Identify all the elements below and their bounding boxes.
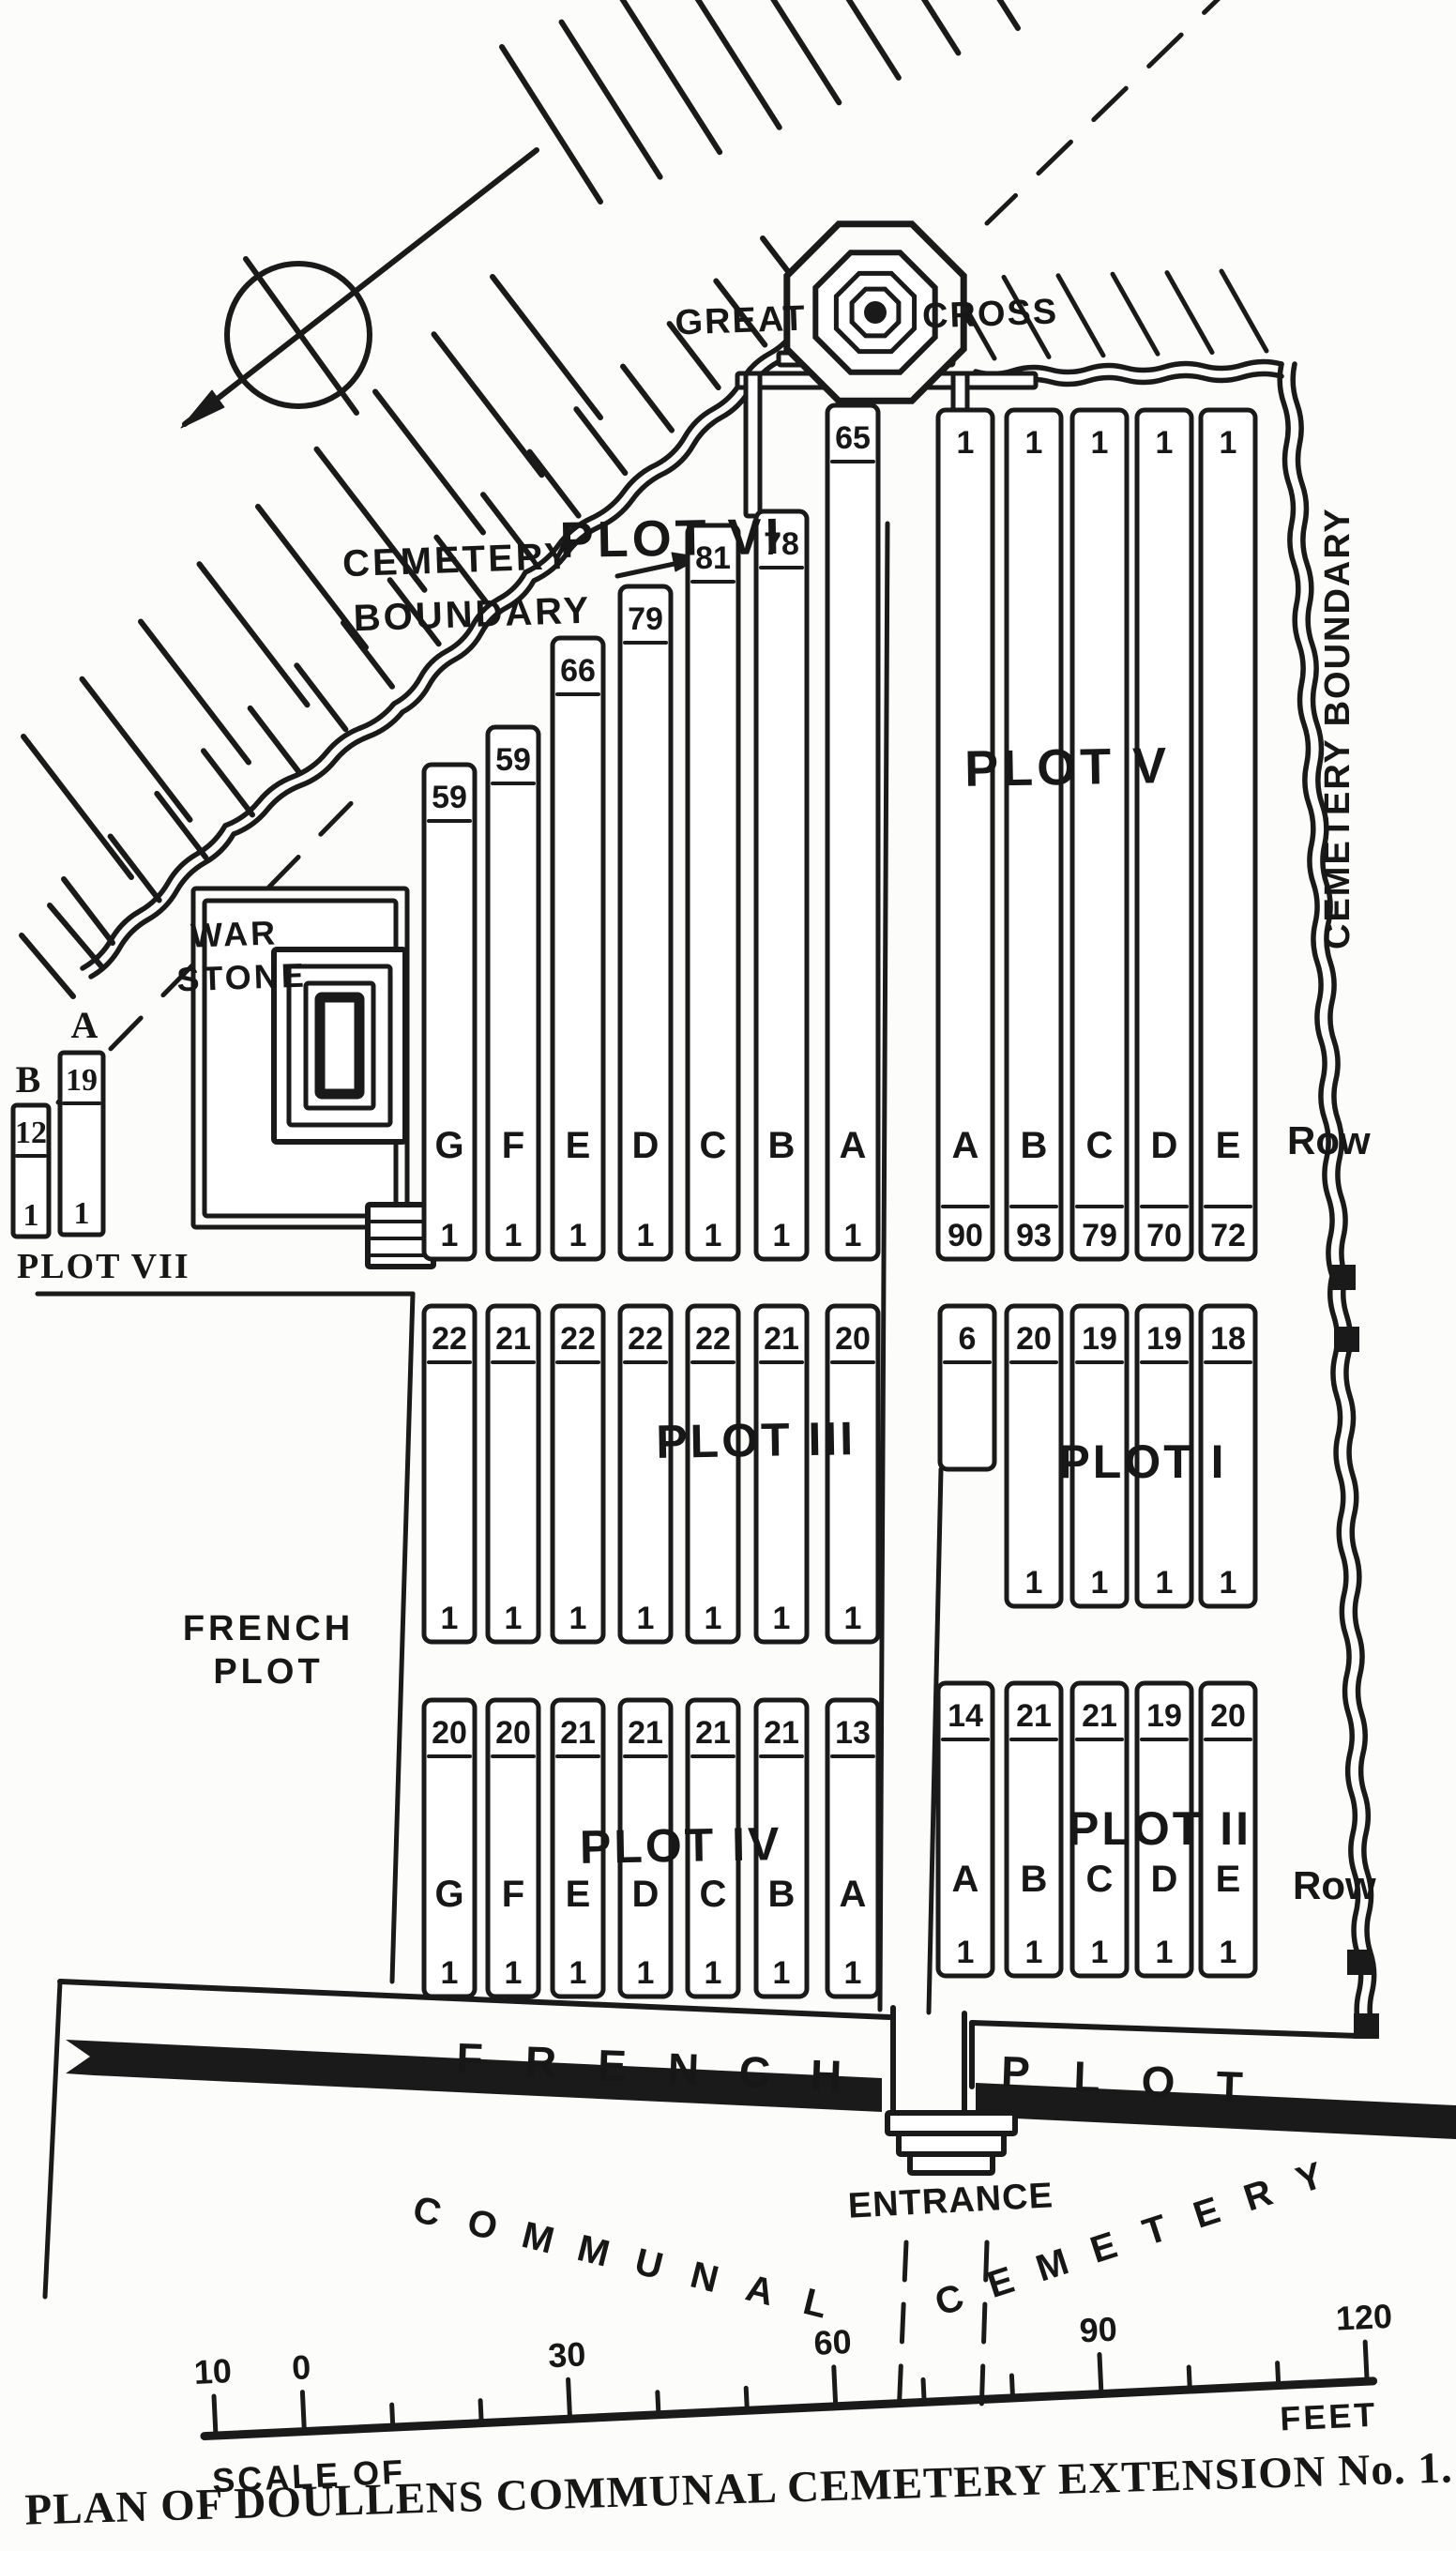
- row-letter: D: [632, 1874, 660, 1915]
- entrance-step: [899, 2133, 1004, 2154]
- row-bottom-number: 1: [844, 1601, 862, 1636]
- scale-tick-label: 10: [193, 2351, 233, 2392]
- cemetery-plan-page: FRENCHPLOTCOMMUNALCEMETERY 59G159F166E17…: [0, 0, 1456, 2551]
- strip-letter: E: [597, 2041, 627, 2090]
- strip-letter: E: [1085, 2225, 1122, 2271]
- plot-v-name: PLOT V: [964, 737, 1171, 797]
- scale-right-label: FEET: [1279, 2395, 1378, 2438]
- french-plot-label-line1: FRENCH: [183, 1609, 354, 1648]
- hatch-stroke: [23, 736, 131, 877]
- plan-title: PLAN OF DOULLENS COMMUNAL CEMETERY EXTEN…: [24, 2443, 1453, 2534]
- entrance-step: [910, 2154, 993, 2173]
- entrance-label: ENTRANCE: [847, 2176, 1054, 2225]
- row-bottom-number: 1: [1091, 1565, 1109, 1601]
- scale-tick: [480, 2401, 481, 2423]
- row-bottom-number: 1: [1220, 1565, 1237, 1601]
- hatch-stroke: [1058, 276, 1103, 356]
- row-top-number: 79: [628, 601, 663, 637]
- scale-tick: [1278, 2363, 1279, 2386]
- hatch-stroke: [1113, 274, 1158, 354]
- row-label-mid: Row: [1287, 1118, 1371, 1162]
- plot-iii-name: PLOT III: [656, 1412, 857, 1468]
- row-top-number: 19: [1146, 1321, 1182, 1357]
- row-top-number: 21: [695, 1715, 731, 1751]
- row-bottom-number: 1: [505, 1218, 523, 1253]
- strip-letter: H: [810, 2050, 842, 2100]
- hatch-stroke: [141, 622, 249, 763]
- hatch-stroke: [22, 935, 73, 996]
- compass-crossbar: [246, 259, 356, 413]
- row-bottom-number: 1: [23, 1198, 39, 1233]
- war-stone: [320, 997, 359, 1094]
- row-bottom-number: 1: [773, 1601, 791, 1636]
- entrance-dashed-line: [899, 2242, 906, 2416]
- scale-tick: [214, 2396, 216, 2436]
- boundary-post-marker: [1334, 1327, 1359, 1352]
- row-top-number: 22: [432, 1321, 467, 1357]
- row-bottom-number: 1: [1091, 1935, 1109, 1970]
- row-letter: C: [700, 1874, 727, 1915]
- row-letter: E: [1216, 1859, 1241, 1900]
- strip-letter: E: [1189, 2190, 1225, 2237]
- hatch-stroke: [681, 0, 780, 128]
- row-top-number: 22: [695, 1321, 731, 1357]
- strip-letter: A: [742, 2268, 779, 2315]
- row-bottom-number: 72: [1210, 1218, 1246, 1253]
- row-letter: C: [1086, 1859, 1114, 1900]
- row-bottom-number: 1: [773, 1218, 791, 1253]
- hatch-stroke: [621, 0, 720, 152]
- row-bottom-number: 1: [637, 1955, 655, 1991]
- hatch-stroke: [502, 47, 600, 202]
- hatch-stroke: [530, 452, 579, 516]
- row-letter: G: [434, 1125, 463, 1166]
- row-bottom-number: 1: [1025, 1565, 1043, 1601]
- row-bottom-number: 1: [1156, 1935, 1174, 1970]
- row-top-number: 22: [628, 1321, 663, 1357]
- plot-vii-name: PLOT VII: [17, 1247, 190, 1286]
- row-bottom-number: 1: [569, 1218, 587, 1253]
- grave-row: [488, 727, 538, 1259]
- cemetery-plan-drawing: FRENCHPLOTCOMMUNALCEMETERY 59G159F166E17…: [0, 0, 1456, 2551]
- row-letter: D: [632, 1125, 660, 1166]
- row-top-number: 20: [1016, 1321, 1052, 1357]
- row-letter: F: [502, 1874, 524, 1915]
- strip-top-line-east: [972, 2023, 1358, 2036]
- row-bottom-number: 1: [441, 1601, 459, 1636]
- scale-tick: [1365, 2342, 1367, 2381]
- row-top-number: 19: [66, 1063, 98, 1098]
- nw-boundary-label-line2: BOUNDARY: [353, 590, 592, 640]
- strip-letter: C: [409, 2189, 446, 2236]
- scale-tick: [1100, 2355, 1101, 2394]
- north-arrow-compass-icon: [181, 150, 537, 428]
- row-letter: B: [1021, 1859, 1048, 1900]
- scale-tick: [1011, 2376, 1012, 2398]
- strip-letter: N: [687, 2255, 723, 2301]
- scale-tick: [834, 2367, 836, 2407]
- row-letter: C: [700, 1125, 727, 1166]
- hatch-stroke: [623, 367, 672, 431]
- great-cross-label-left: GREAT: [675, 299, 808, 343]
- scale-tick: [658, 2392, 659, 2415]
- scale-bar-line: [205, 2381, 1373, 2437]
- row-top-number: 65: [835, 420, 871, 456]
- row-bottom-number: 1: [569, 1955, 587, 1991]
- hatch-stroke: [250, 708, 299, 772]
- row-top-number: 14: [948, 1698, 983, 1734]
- compass-needle: [185, 150, 537, 424]
- row-letter: E: [566, 1874, 591, 1915]
- row-bottom-number: 90: [948, 1218, 983, 1253]
- row-top-number: 6: [959, 1321, 977, 1357]
- row-top-number: 1: [1220, 425, 1237, 461]
- row-letter: E: [1216, 1125, 1241, 1166]
- war-stone-label-line2: STONE: [176, 956, 308, 999]
- great-cross-center: [864, 301, 887, 324]
- row-bottom-number: 1: [1025, 1935, 1043, 1970]
- strip-letter: C: [930, 2276, 968, 2324]
- boundary-post-marker: [1347, 1950, 1373, 1975]
- row-letter: B: [1021, 1125, 1048, 1166]
- central-path-west-line: [880, 524, 887, 2010]
- row-bottom-number: 70: [1146, 1218, 1182, 1253]
- grave-row: [424, 765, 475, 1259]
- scale-tick: [392, 2405, 393, 2427]
- row-label-bottom: Row: [1293, 1863, 1376, 1907]
- hatch-stroke: [375, 392, 483, 533]
- hatch-stroke: [83, 679, 190, 820]
- row-letter: A: [840, 1125, 867, 1166]
- row-bottom-number: 1: [773, 1955, 791, 1991]
- row-letter: E: [566, 1125, 591, 1166]
- row-bottom-number: 1: [1156, 1565, 1174, 1601]
- scale-tick-label: 0: [291, 2347, 311, 2387]
- nw-boundary-label-line1: CEMETERY: [341, 536, 572, 585]
- row-bottom-number: 1: [505, 1955, 523, 1991]
- row-top-number: 19: [1146, 1698, 1182, 1734]
- plot-iv-name: PLOT IV: [579, 1817, 781, 1874]
- strip-letter: O: [1141, 2057, 1176, 2106]
- hatch-stroke: [1167, 273, 1212, 353]
- hatch-stroke: [157, 794, 205, 858]
- row-top-number: 13: [835, 1715, 871, 1751]
- strip-letter: C: [738, 2047, 771, 2097]
- scale-tick-label: 30: [547, 2334, 586, 2375]
- strip-letter: T: [1216, 2062, 1244, 2112]
- hatch-stroke: [493, 277, 600, 418]
- french-plot-east-line: [392, 1294, 413, 1982]
- row-bottom-number: 1: [637, 1601, 655, 1636]
- scale-tick-label: 90: [1079, 2310, 1118, 2350]
- strip-letter: U: [630, 2241, 667, 2288]
- row-top-number: 66: [560, 653, 596, 689]
- row-bottom-number: 1: [705, 1955, 722, 1991]
- strip-letter: O: [463, 2201, 502, 2248]
- row-top-number: 21: [764, 1715, 799, 1751]
- row-top-number: 21: [1082, 1698, 1117, 1734]
- row-letter: B: [16, 1058, 41, 1101]
- row-bottom-number: 1: [441, 1218, 459, 1253]
- row-letter: A: [952, 1125, 979, 1166]
- row-bottom-number: 1: [844, 1218, 862, 1253]
- strip-letter: L: [1073, 2052, 1101, 2102]
- strip-letter: T: [1138, 2208, 1173, 2254]
- row-letter: C: [1086, 1125, 1114, 1166]
- hatch-stroke: [200, 564, 308, 705]
- row-letter: A: [952, 1859, 979, 1900]
- row-top-number: 21: [764, 1321, 799, 1357]
- entrance-step: [887, 2113, 1015, 2133]
- plot-i-name: PLOT I: [1058, 1435, 1226, 1488]
- strip-letter: M: [518, 2214, 558, 2262]
- row-bottom-number: 1: [441, 1955, 459, 1991]
- row-top-number: 1: [957, 425, 975, 461]
- row-letter: B: [768, 1125, 796, 1166]
- scale-tick: [923, 2379, 924, 2402]
- row-letter: D: [1151, 1859, 1178, 1900]
- row-top-number: 59: [495, 742, 531, 778]
- row-top-number: 59: [432, 780, 467, 815]
- strip-letter: Y: [1291, 2154, 1327, 2201]
- row-letter: G: [434, 1874, 463, 1915]
- row-top-number: 20: [495, 1715, 531, 1751]
- row-bottom-number: 1: [505, 1601, 523, 1636]
- row-top-number: 19: [1082, 1321, 1117, 1357]
- boundary-dashed-line: [987, 0, 1236, 223]
- row-top-number: 18: [1210, 1321, 1246, 1357]
- strip-letter: M: [573, 2227, 614, 2275]
- row-top-number: 21: [1016, 1698, 1052, 1734]
- row-bottom-number: 1: [705, 1601, 722, 1636]
- strip-letter: R: [1239, 2172, 1278, 2220]
- row-bottom-number: 1: [844, 1955, 862, 1991]
- hatch-stroke: [562, 23, 660, 177]
- scale-tick-label: 120: [1335, 2297, 1393, 2338]
- strip-letter: P: [1000, 2046, 1030, 2096]
- plot-ii-name: PLOT II: [1068, 1802, 1251, 1855]
- scale-tick-label: 60: [813, 2322, 853, 2362]
- row-bottom-number: 1: [957, 1935, 975, 1970]
- strip-letter: R: [524, 2037, 557, 2087]
- war-stone-label-line1: WAR: [190, 913, 278, 954]
- row-top-number: 1: [1091, 425, 1109, 461]
- east-boundary-label: CEMETERY BOUNDARY: [1318, 507, 1357, 949]
- row-top-number: 21: [628, 1715, 663, 1751]
- strip-letter: F: [456, 2034, 484, 2084]
- cross-platform-post: [746, 373, 760, 516]
- row-bottom-number: 79: [1082, 1218, 1117, 1253]
- boundary-post-marker: [1330, 1265, 1356, 1290]
- row-letter: B: [768, 1874, 796, 1915]
- french-plot-strip: FRENCHPLOTCOMMUNALCEMETERY: [45, 1982, 1456, 2416]
- plot-vi-name: PLOT VI: [559, 509, 783, 569]
- strip-letter: E: [982, 2259, 1019, 2306]
- row-letter: A: [840, 1874, 867, 1915]
- strip-letter: M: [1031, 2240, 1073, 2289]
- row-top-number: 22: [560, 1321, 596, 1357]
- row-top-number: 20: [432, 1715, 467, 1751]
- row-letter: F: [502, 1125, 524, 1166]
- hatch-stroke: [434, 334, 542, 475]
- row-bottom-number: 1: [74, 1196, 90, 1231]
- strip-letter: N: [667, 2043, 700, 2093]
- row-top-number: 21: [560, 1715, 596, 1751]
- row-bottom-number: 1: [569, 1601, 587, 1636]
- row-top-number: 20: [835, 1321, 871, 1357]
- french-plot-label-line2: PLOT: [213, 1652, 323, 1692]
- row-letter: D: [1151, 1125, 1178, 1166]
- strip-west-line: [45, 1982, 60, 2297]
- row-top-number: 1: [1156, 425, 1174, 461]
- row-bottom-number: 1: [1220, 1935, 1237, 1970]
- row-top-number: 12: [15, 1116, 47, 1150]
- scale-tick: [302, 2392, 304, 2432]
- hatch-stroke: [1221, 271, 1266, 351]
- great-cross-label-right: CROSS: [921, 292, 1059, 336]
- strip-letter: L: [799, 2281, 831, 2327]
- row-bottom-number: 1: [705, 1218, 722, 1253]
- scale-tick: [569, 2379, 570, 2419]
- scale-tick: [746, 2388, 747, 2410]
- scale-tick: [1189, 2367, 1190, 2390]
- row-bottom-number: 93: [1016, 1218, 1052, 1253]
- row-top-number: 1: [1025, 425, 1043, 461]
- hatch-stroke: [111, 836, 159, 900]
- row-letter: A: [71, 1004, 99, 1046]
- row-top-number: 20: [1210, 1698, 1246, 1734]
- row-bottom-number: 1: [637, 1218, 655, 1253]
- row-top-number: 21: [495, 1321, 531, 1357]
